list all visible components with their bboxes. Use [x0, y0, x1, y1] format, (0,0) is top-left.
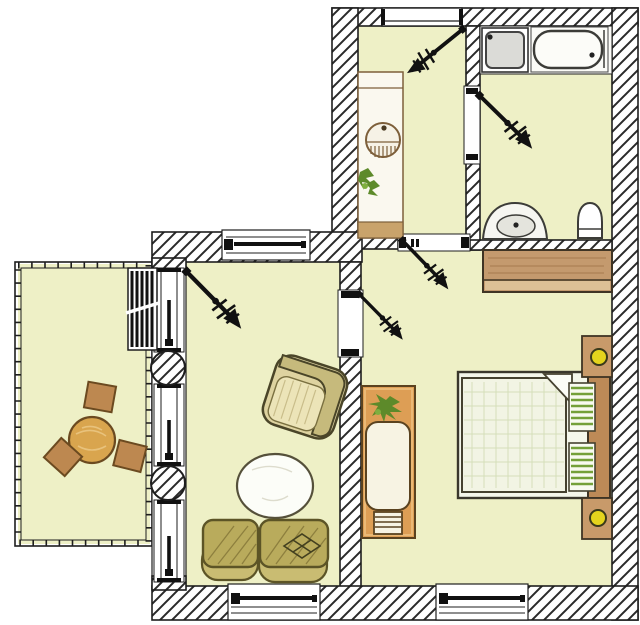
sofa-cushion-right — [260, 520, 328, 567]
lamp — [591, 349, 607, 365]
nightstand-upper — [582, 336, 612, 377]
kitchen-counter-end — [358, 222, 403, 238]
floor-plan-canvas — [0, 0, 640, 625]
bed-duvet — [462, 378, 566, 492]
sofa — [202, 520, 328, 582]
round-column-lower — [151, 466, 185, 500]
stool — [84, 382, 116, 412]
floor-plan-drawing — [0, 0, 640, 625]
round-column-upper — [151, 351, 185, 385]
stool — [113, 440, 146, 472]
sofa-cushion-left — [203, 520, 258, 567]
coffee-table — [237, 454, 313, 518]
living-top-window — [222, 230, 310, 260]
exterior-wall-right — [612, 8, 638, 620]
shower-tray — [482, 28, 528, 72]
kitchen-top-window — [381, 8, 463, 26]
exterior-wall-kitchen-left — [332, 8, 358, 250]
exterior-wall-bottom — [152, 586, 638, 620]
bedroom-bottom-window — [436, 584, 528, 620]
balcony-glazing-segment-b — [154, 384, 184, 466]
balcony-glazing-segment-a — [154, 268, 184, 352]
opening-living-bedroom — [338, 290, 363, 357]
chaise-unit — [362, 386, 415, 538]
radiator — [126, 268, 159, 350]
balcony-glazing-segment-c — [154, 500, 184, 582]
double-bed — [458, 372, 610, 498]
bathtub — [531, 27, 608, 72]
step-ladder — [374, 512, 402, 534]
interior-wall-under-bath — [470, 240, 612, 250]
floors — [18, 26, 612, 588]
kitchen — [358, 72, 403, 238]
living-bottom-window — [228, 584, 320, 620]
toilet — [578, 203, 602, 238]
nightstand-lower — [582, 498, 612, 539]
lamp — [590, 510, 606, 526]
chaise-mattress — [366, 422, 410, 510]
wardrobe — [483, 250, 612, 292]
kitchen-sink — [366, 123, 400, 158]
exterior-wall-top — [332, 8, 638, 26]
